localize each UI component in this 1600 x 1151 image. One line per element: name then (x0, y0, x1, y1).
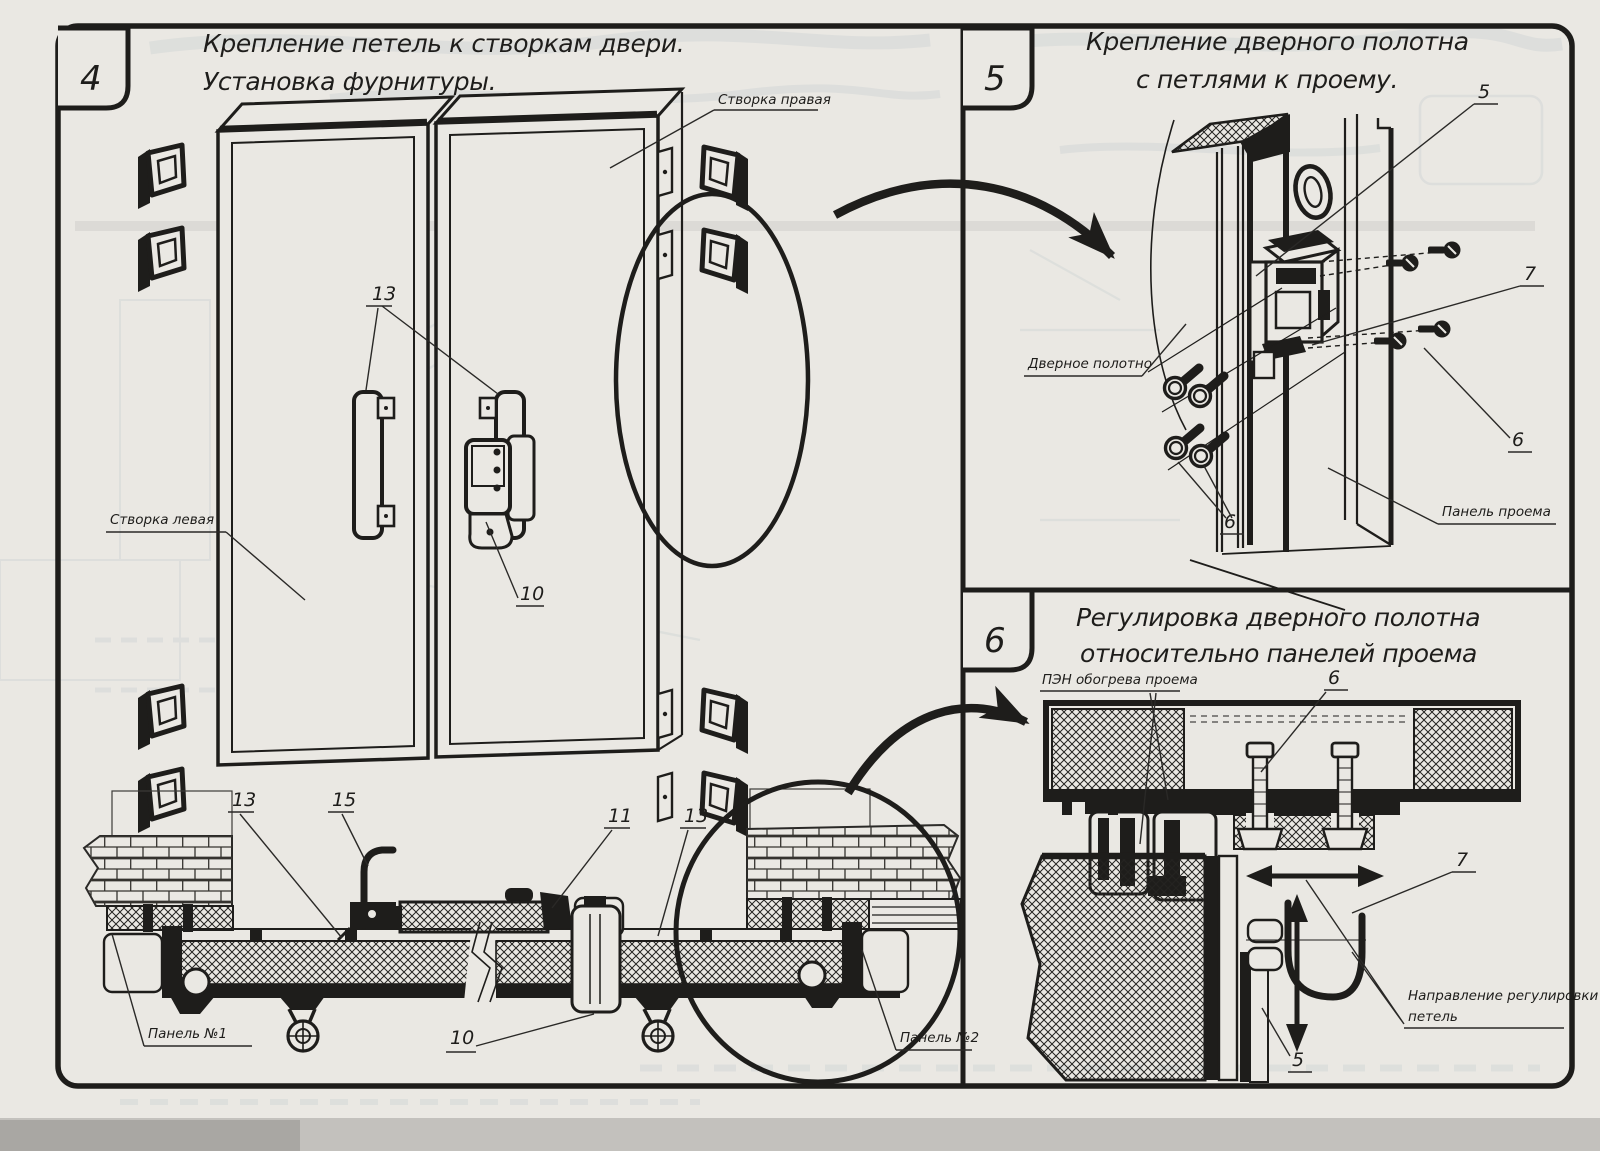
svg-text:15: 15 (332, 789, 356, 811)
scanned-drawing-page: 4 5 6 Крепление петель к створкам двери.… (0, 0, 1600, 1151)
svg-text:5: 5 (1292, 1049, 1304, 1071)
horizontal-adjust-arrow (1246, 865, 1384, 887)
hinge-set-left-door (138, 145, 184, 833)
handle-hole (1291, 163, 1335, 221)
callout-7: 7 (1312, 263, 1544, 345)
svg-text:Створка правая: Створка правая (718, 92, 831, 108)
callout-13-left: 13 (228, 789, 342, 938)
callout-15: 15 (328, 789, 368, 866)
svg-text:Створка левая: Створка левая (110, 512, 214, 528)
panel4-title-line1: Крепление петель к створкам двери. (203, 29, 684, 58)
svg-text:7: 7 (1456, 849, 1468, 871)
svg-text:11: 11 (608, 805, 632, 827)
caster-wheel-left (279, 996, 325, 1051)
caster-wheel-right (634, 996, 680, 1051)
svg-text:петель: петель (1408, 1009, 1458, 1025)
svg-text:13: 13 (372, 283, 396, 305)
panel4-section-view: 13 15 11 13 10 Панель №1 (84, 782, 979, 1082)
svg-text:10: 10 (450, 1027, 474, 1049)
door-edge-hinge-plates (658, 148, 672, 821)
wall-section (1022, 856, 1268, 1082)
callout-11: 11 (552, 805, 632, 908)
detail-arrow-to-panel5 (835, 184, 1112, 256)
panel4-number: 4 (80, 59, 102, 99)
svg-text:5: 5 (1478, 81, 1490, 103)
svg-text:ПЭН обогрева проема: ПЭН обогрева проема (1042, 672, 1198, 688)
callout-13-right: 13 (658, 805, 708, 936)
label-opening-panel: Панель проема (1328, 468, 1556, 524)
svg-text:7: 7 (1524, 263, 1536, 285)
svg-text:13: 13 (684, 805, 708, 827)
svg-text:Панель проема: Панель проема (1442, 504, 1551, 520)
door-leaf-left (218, 97, 452, 765)
scan-shadow-corner (0, 1120, 300, 1151)
panel5-door-to-opening-view: Крепление дверного полотна с петлями к п… (1024, 27, 1556, 610)
svg-text:Направление регулировки: Направление регулировки (1408, 988, 1598, 1004)
panel5-number: 5 (984, 59, 1006, 99)
detail-arrow-to-panel6 (848, 708, 1026, 793)
callout-6-right: 6 (1424, 348, 1532, 452)
label-adjust-direction: Направление регулировки петель (1306, 880, 1598, 1028)
svg-text:13: 13 (232, 789, 256, 811)
panel6-adjustment-view: Регулировка дверного полотна относительн… (1022, 603, 1598, 1082)
svg-text:6: 6 (1512, 429, 1524, 451)
svg-text:6: 6 (1328, 667, 1340, 689)
svg-text:10: 10 (520, 583, 544, 605)
callout-5: 5 (1262, 1008, 1312, 1072)
svg-text:Панель №1: Панель №1 (148, 1026, 227, 1042)
callout-10-bottom: 10 (446, 1014, 594, 1052)
callout-6-left: 6 (1178, 462, 1244, 534)
hinge-detail-block (1250, 230, 1338, 378)
brick-wall-left (84, 836, 232, 906)
panel5-title-line1: Крепление дверного полотна (1086, 27, 1469, 56)
callout-5: 5 (1256, 81, 1498, 276)
section-latch-10 (572, 896, 620, 1012)
panel-end-profile-left (104, 926, 215, 1014)
panel4-title-line2: Установка фурнитуры. (203, 67, 496, 96)
panel4-hinge-mounting-view: Крепление петель к створкам двери. Устан… (84, 29, 1112, 1082)
svg-text:Дверное полотно: Дверное полотно (1027, 356, 1152, 372)
panel6-number: 6 (984, 621, 1006, 661)
panel6-title-line1: Регулировка дверного полотна (1076, 603, 1480, 632)
opening-beam-section (1046, 703, 1518, 815)
panel5-title-line2: с петлями к проему. (1136, 65, 1398, 94)
svg-text:Панель №2: Панель №2 (900, 1030, 979, 1046)
engineering-drawing-sheet: 4 5 6 Крепление петель к створкам двери.… (0, 0, 1600, 1151)
panel6-title-line2: относительно панелей проема (1080, 639, 1477, 668)
hinge-set-right-door (702, 147, 748, 837)
